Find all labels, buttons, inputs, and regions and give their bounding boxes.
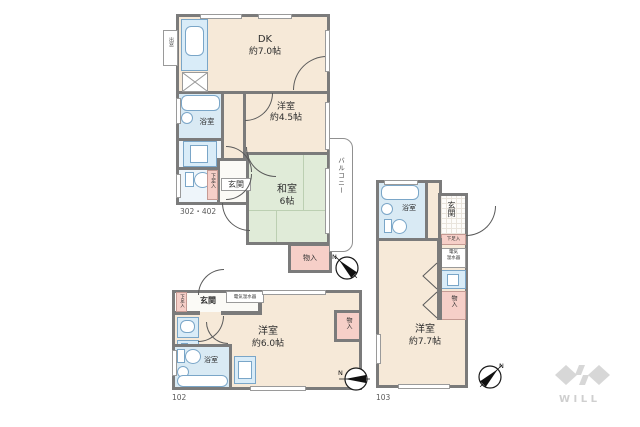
shoe-box-a: 下足入: [207, 170, 218, 200]
western-b-name: 洋室: [228, 326, 308, 339]
shoe-box-a-label: 下足入: [210, 173, 215, 188]
window: [200, 14, 242, 19]
dk-label: DK 約7.0帖: [225, 34, 305, 58]
closet-a: 物入: [288, 243, 332, 273]
washbasin-icon: [381, 203, 393, 215]
closet-c: 物入: [441, 291, 466, 320]
window: [176, 98, 181, 124]
floor-plan: 物入 バルコニー 出窓 浴室 下足入 玄関 302・402 DK 約7.0帖 洋…: [0, 0, 640, 427]
compass-icon: N: [338, 361, 374, 397]
shoe-box-c: 下足入: [441, 234, 466, 245]
water-heater-icon: [441, 270, 466, 289]
western-c-name: 洋室: [394, 324, 456, 337]
japanese-label: 和室 6帖: [256, 184, 318, 208]
japanese-size: 6帖: [256, 197, 318, 208]
toilet-tank-icon: [384, 219, 392, 233]
western-b-size: 約6.0帖: [228, 339, 308, 350]
shoe-box-b: 下足入: [176, 292, 187, 312]
western-c-size: 約7.7帖: [394, 337, 456, 348]
bath-b-label: 浴室: [194, 356, 228, 365]
western-c-label: 洋室 約7.7帖: [394, 324, 456, 348]
window: [398, 384, 450, 389]
balcony: バルコニー: [329, 138, 353, 252]
window: [384, 180, 418, 185]
front-door-arc: [466, 206, 496, 236]
wall: [221, 311, 261, 315]
brand-logo-text: WILL: [559, 394, 601, 405]
window: [325, 102, 330, 150]
bath-c-label: 浴室: [393, 204, 425, 213]
brand-logo: WILL: [554, 362, 618, 408]
bath-a-label: 浴室: [190, 117, 224, 126]
sink-basin-icon: [180, 320, 195, 333]
water-heater-label-b: 電気温水器: [226, 291, 264, 303]
dk-size: 約7.0帖: [225, 47, 305, 58]
closet-b-label: 物入: [345, 317, 351, 329]
water-heater-label-c: 電気 温水器: [441, 248, 466, 268]
bathtub-icon: [181, 95, 220, 111]
bay-window: 出窓: [163, 30, 178, 66]
compass-icon: N: [472, 359, 508, 395]
compass-n-label: N: [499, 362, 504, 370]
washing-machine-icon: [183, 141, 217, 167]
window: [258, 14, 292, 19]
toilet-icon: [392, 219, 407, 234]
western-b-label: 洋室 約6.0帖: [228, 326, 308, 350]
shoe-box-b-label: 下足入: [179, 294, 184, 308]
dk-name: DK: [225, 34, 305, 47]
water-heater-line2: 温水器: [442, 255, 465, 261]
toilet-tank-icon: [177, 349, 185, 363]
bifold-door-icon: [420, 262, 438, 320]
front-door-arc: [222, 203, 250, 231]
shoe-box-c-label: 下足入: [442, 237, 465, 243]
compass-n-label: N: [332, 253, 337, 261]
compass-n-label: N: [338, 369, 343, 377]
washing-machine-drum-icon: [238, 361, 252, 379]
closet-a-label: 物入: [291, 254, 329, 263]
entrance-b-label: 玄関: [193, 296, 223, 306]
balcony-label: バルコニー: [337, 157, 344, 195]
window: [325, 30, 330, 72]
front-door-arc: [198, 269, 224, 295]
window: [325, 168, 330, 234]
tatami-line: [249, 210, 327, 211]
refrigerator-space-icon: [182, 72, 208, 92]
water-heater-tank-icon: [447, 274, 459, 286]
closet-c-label: 物入: [450, 295, 456, 307]
entrance-c-label: 玄関: [447, 201, 455, 217]
kitchen-sink-icon: [177, 317, 199, 338]
tatami-line: [276, 211, 277, 242]
window: [176, 174, 181, 198]
window: [172, 350, 177, 376]
bathtub-icon: [177, 375, 228, 387]
washing-machine-drum-icon: [190, 145, 208, 163]
unit-number-b: 102: [172, 393, 202, 402]
unit-number-c: 103: [376, 393, 406, 402]
japanese-name: 和室: [256, 184, 318, 197]
washing-machine-icon: [234, 356, 256, 384]
compass-icon: N: [329, 250, 365, 286]
closet-b: 物入: [334, 310, 362, 342]
window: [376, 334, 381, 364]
bay-window-label: 出窓: [168, 37, 173, 47]
toilet-tank-icon: [185, 172, 194, 187]
window: [250, 386, 306, 391]
window: [262, 290, 326, 295]
kitchen-sink-icon: [185, 26, 204, 56]
bathtub-icon: [381, 185, 419, 200]
